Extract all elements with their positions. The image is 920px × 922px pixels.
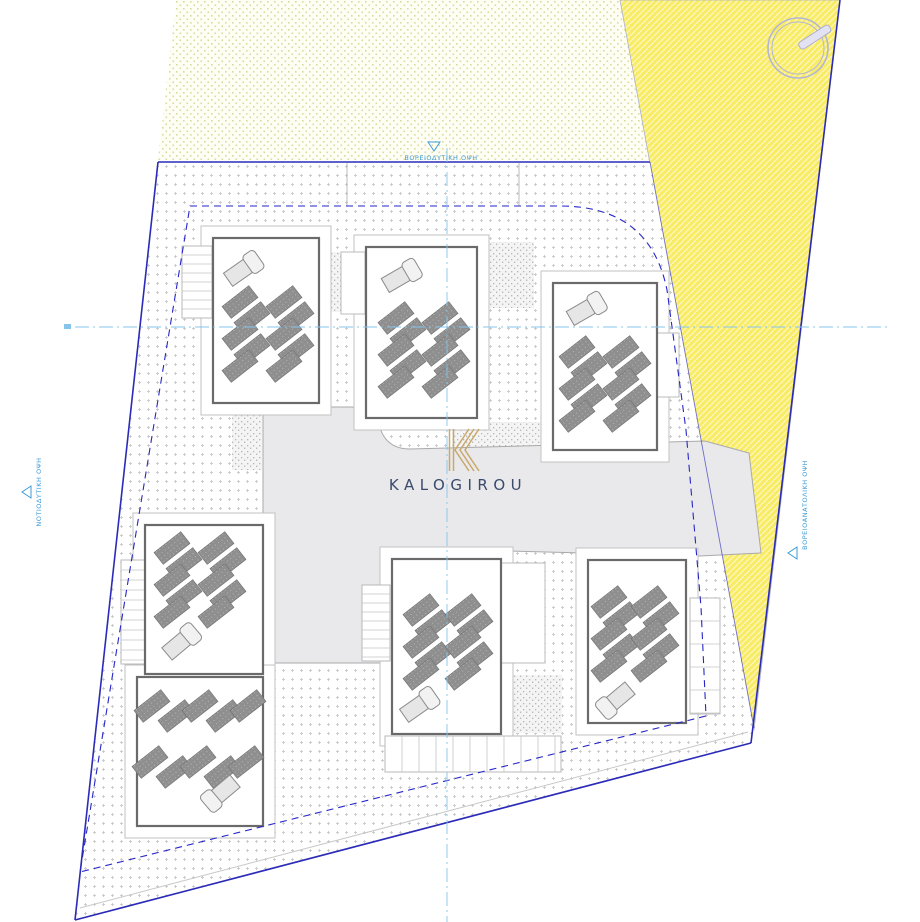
- elevation-label-top: ΒΟΡΕΙΟΔΥΤΙΚΗ ΟΨΗ: [404, 154, 477, 162]
- brand-title: KALOGIROU: [389, 476, 527, 494]
- elevation-marker-right-icon: [788, 547, 797, 559]
- centerline-end-marker: [64, 324, 71, 329]
- site-plan-canvas: KALOGIROU ΒΟΡΕΙΟΔΥΤΙΚΗ ΟΨΗ ΝΟΤΙΟΔΥΤΙΚΗ Ο…: [0, 0, 920, 922]
- elevation-marker-left-icon: [22, 486, 31, 498]
- elevation-label-right: ΒΟΡΕΙΟΑΝΑΤΟΛΙΚΗ ΟΨΗ: [801, 460, 809, 550]
- elevation-label-left: ΝΟΤΙΟΔΥΤΙΚΗ ΟΨΗ: [35, 457, 43, 526]
- neighbor-parcel-top: [158, 0, 650, 160]
